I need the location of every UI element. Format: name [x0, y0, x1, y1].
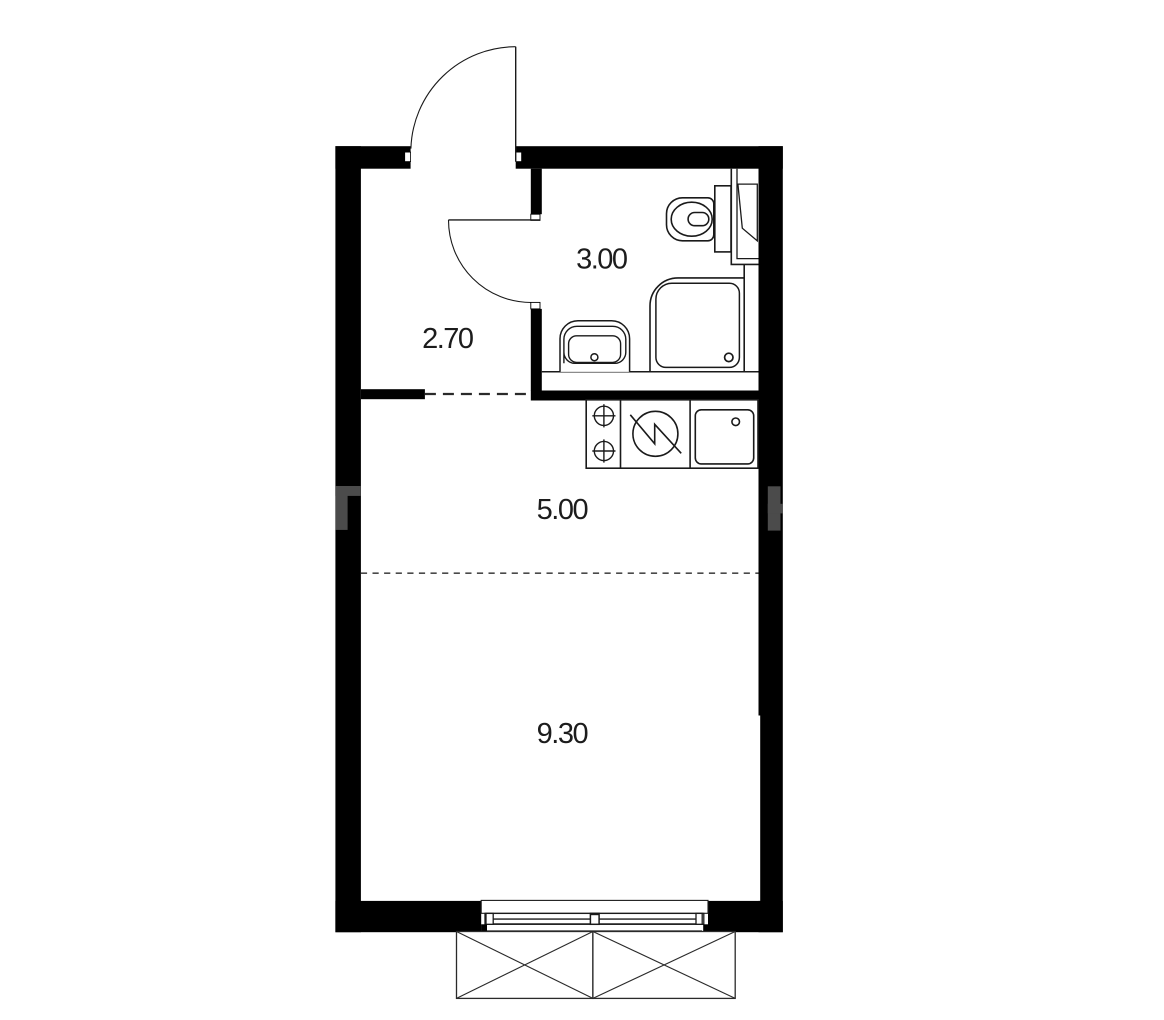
svg-text:9.30: 9.30: [537, 718, 588, 750]
svg-text:2.70: 2.70: [422, 323, 473, 355]
svg-text:3.00: 3.00: [576, 243, 627, 275]
svg-text:5.00: 5.00: [537, 494, 588, 526]
